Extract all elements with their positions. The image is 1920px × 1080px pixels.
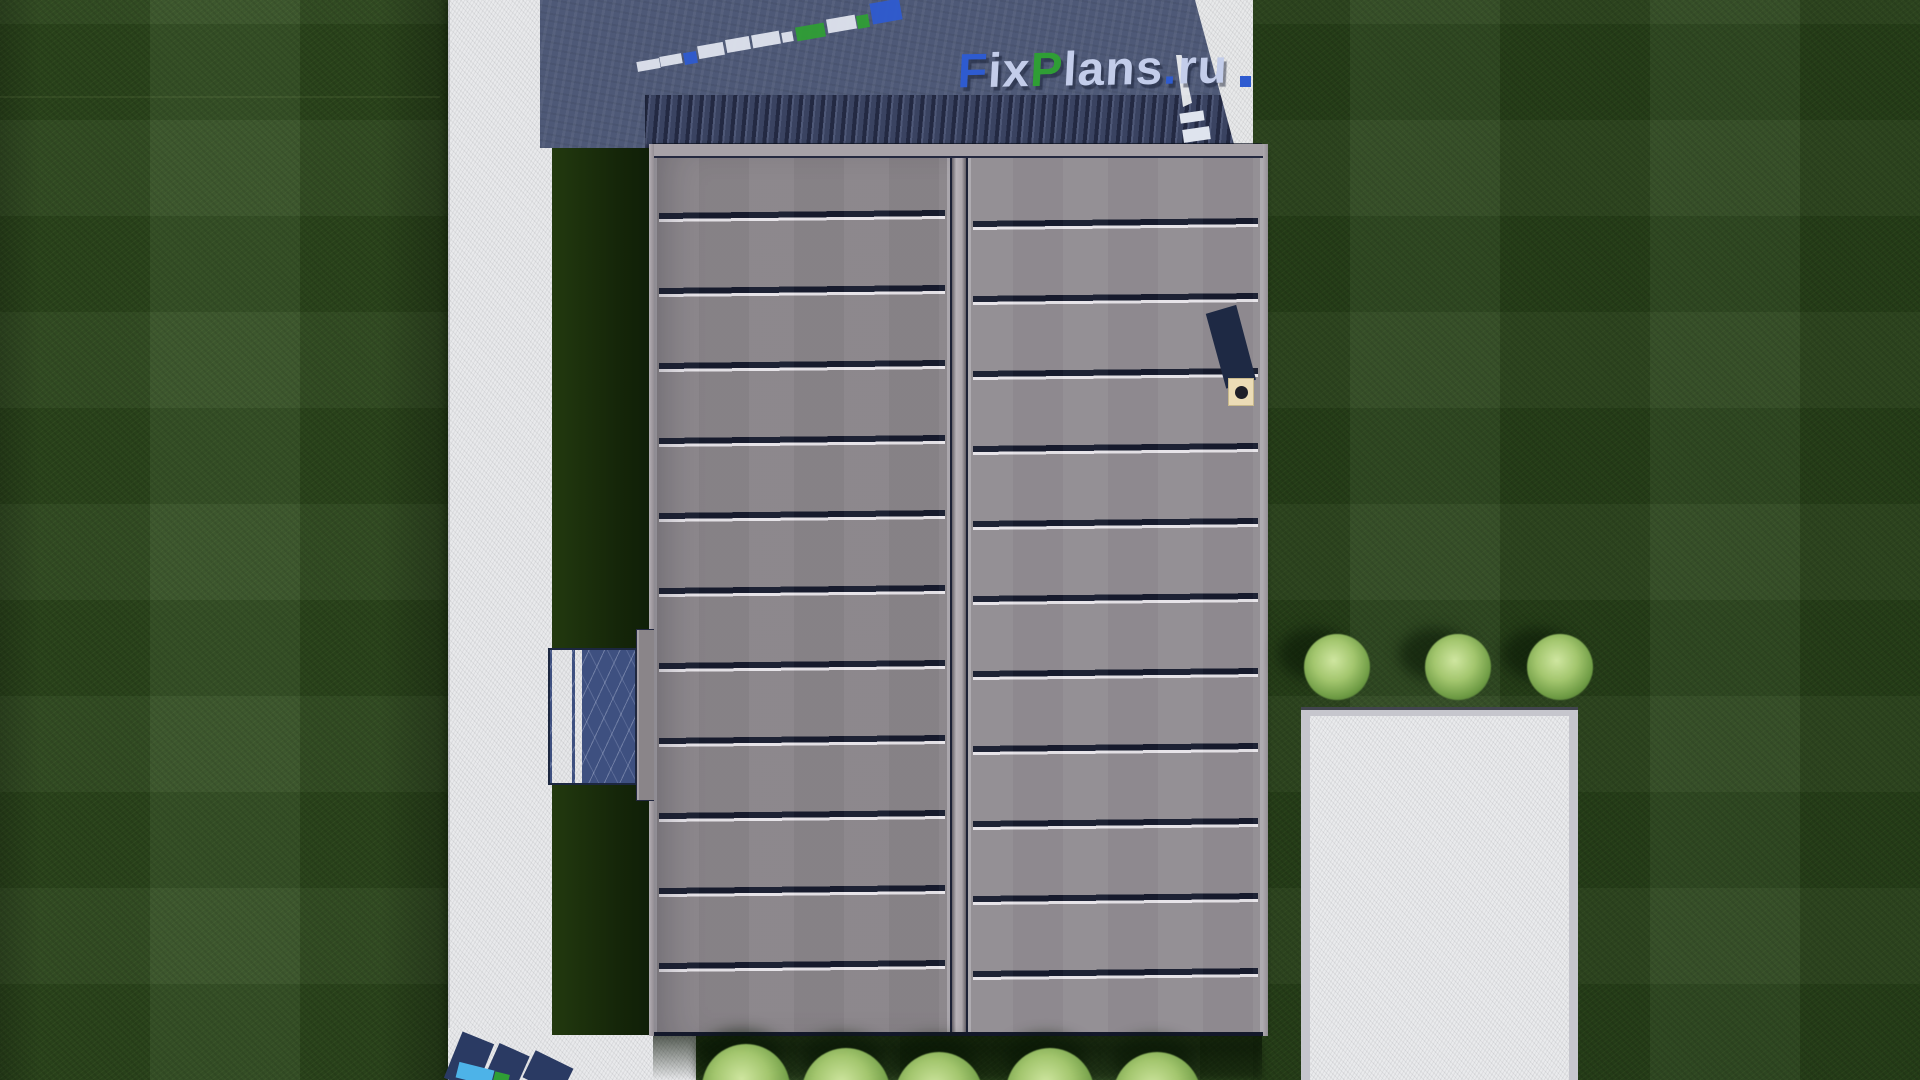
grass-left-mow-line: [0, 96, 440, 98]
roof-eave-bumpout: [636, 629, 654, 801]
porch-step-stripe: [575, 650, 582, 783]
watermark-logo: FixPlans.ru: [956, 40, 1229, 100]
patio-pad-surface: [1310, 716, 1569, 1080]
house-shadow-left: [552, 148, 653, 1035]
driveway-texture-band: [645, 95, 1253, 148]
shrub: [1527, 634, 1593, 700]
patio-pad: [1301, 707, 1578, 1080]
house-roof: [653, 143, 1262, 1035]
roof-ridge-cap: [950, 144, 968, 1036]
logo-letter-f: F: [956, 45, 989, 99]
porch-step-stripe: [552, 650, 572, 783]
watermark-dash: [683, 51, 698, 65]
roof-panel-shading: [654, 158, 950, 1034]
aerial-site-render: FixPlans.ru: [0, 0, 1920, 1080]
logo-letters-ix: ix: [987, 44, 1032, 98]
logo-letters-lans: lans: [1062, 42, 1165, 97]
watermark-fragment-blue: [1240, 76, 1251, 87]
logo-letter-p: P: [1029, 44, 1065, 98]
grass-left-field: [0, 0, 448, 1080]
roof-top-edge-cap: [654, 144, 1263, 158]
walkway-path: [448, 0, 552, 1080]
shrub: [1425, 634, 1491, 700]
roof-right-slope: [968, 158, 1263, 1034]
shrub: [1304, 634, 1370, 700]
watermark-dash: [781, 31, 794, 43]
chimney-cap: [1228, 378, 1254, 406]
logo-letters-ru: ru: [1176, 41, 1229, 95]
roof-panel-shading: [968, 158, 1263, 1034]
roof-left-slope: [654, 158, 950, 1034]
chimney-flue-hole: [1235, 386, 1248, 399]
watermark-dash: [856, 14, 870, 29]
